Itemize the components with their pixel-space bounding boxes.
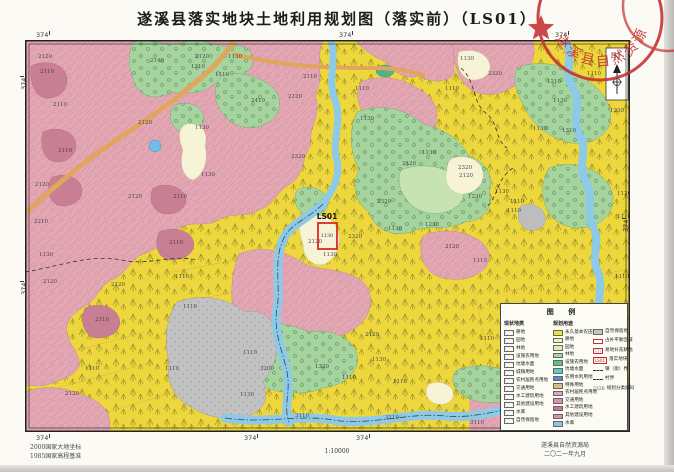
parcel-code-label: 1230 bbox=[468, 194, 482, 200]
legend-item-current: 林地 bbox=[504, 345, 551, 353]
parcel-code-label: 1110 bbox=[175, 274, 189, 280]
legend-item-label: 其他建设用地 bbox=[516, 403, 544, 408]
legend-swatch bbox=[553, 391, 563, 397]
legend-item-misc: 自然保留地 bbox=[593, 327, 628, 337]
grid-coordinate-label: 374 bbox=[20, 76, 28, 90]
legend-item-label: 设施农用地 bbox=[565, 361, 588, 366]
legend-swatch bbox=[553, 414, 563, 420]
legend-item-label: 自然保留地 bbox=[516, 419, 539, 424]
parcel-code-label: 1120 bbox=[617, 191, 630, 197]
legend-item-label: 交通用地 bbox=[565, 399, 583, 404]
legend-swatch: 2320 bbox=[593, 387, 605, 392]
parcel-code-label: 2120 bbox=[445, 244, 459, 250]
grid-coordinate-label: 374 bbox=[244, 434, 258, 442]
parcel-code-label: 1110 bbox=[355, 86, 369, 92]
legend-swatch bbox=[553, 383, 563, 389]
grid-coordinate-label: 374 bbox=[555, 31, 569, 39]
legend-item-label: 易地补充耕地 bbox=[605, 349, 633, 354]
legend-swatch bbox=[504, 362, 514, 368]
parcel-code-label: 2120 bbox=[128, 194, 142, 200]
parcel-code-label: 2120 bbox=[308, 239, 322, 245]
legend-item-label: 村界 bbox=[605, 377, 614, 382]
grid-coordinate-label: 374 bbox=[20, 281, 28, 295]
legend-item-current: 园地 bbox=[504, 337, 551, 345]
parcel-code-label: 2210 bbox=[34, 219, 48, 225]
legend-item-current: 城镇用地 bbox=[504, 369, 551, 377]
legend-swatch bbox=[504, 354, 514, 360]
legend-current-header: 现状地类 bbox=[504, 320, 551, 327]
legend-item-current: 水库 bbox=[504, 409, 551, 417]
legend-item-planned: 水库 bbox=[553, 420, 593, 428]
parcel-code-label: 2110 bbox=[58, 148, 72, 154]
legend-item-planned: 交通用地 bbox=[553, 397, 593, 405]
legend-item-planned: 水工建筑用地 bbox=[553, 405, 593, 413]
focus-parcel-code: 1130 bbox=[321, 233, 334, 239]
parcel-code-label: 2120 bbox=[138, 120, 152, 126]
legend-swatch bbox=[504, 394, 514, 400]
legend-item-planned: 坑塘水面 bbox=[553, 367, 593, 375]
legend-swatch bbox=[553, 353, 563, 359]
map-date: 二〇二一年九月 bbox=[500, 450, 630, 459]
parcel-code-label: 2110 bbox=[173, 194, 187, 200]
pond-region bbox=[149, 140, 161, 152]
legend-item-current: 设施农用地 bbox=[504, 353, 551, 361]
parcel-code-label: 2320 bbox=[348, 234, 362, 240]
parcel-code-label: 2110 bbox=[169, 240, 183, 246]
scale-note: 1:10000 bbox=[287, 447, 387, 456]
legend-swatch bbox=[593, 379, 603, 380]
parcel-code-label: 1310 bbox=[562, 128, 576, 134]
legend-item-misc: 占补平衡区域 bbox=[593, 337, 628, 347]
parcel-code-label: 2410 bbox=[251, 98, 265, 104]
legend-item-misc: 2320规划分类编码 bbox=[593, 385, 628, 395]
scan-shadow-bottom bbox=[0, 465, 674, 472]
legend-misc-column: 自然保留地占补平衡区域易地补充耕地LS01落实地块镇（街）界村界2320规划分类… bbox=[593, 327, 628, 394]
parcel-code-label: 1110 bbox=[165, 366, 179, 372]
parcel-code-label: 1110 bbox=[473, 258, 487, 264]
parcel-code-label: 1130 bbox=[195, 125, 209, 131]
legend-item-label: 设施农用地 bbox=[516, 355, 539, 360]
parcel-code-label: 3200 bbox=[260, 366, 274, 372]
agency-note: 遂溪县自然资源局 二〇二一年九月 bbox=[500, 441, 630, 459]
legend-item-planned: 设施农用地 bbox=[553, 359, 593, 367]
parcel-code-label: 2120 bbox=[288, 94, 302, 100]
legend-swatch bbox=[504, 378, 514, 384]
legend-swatch bbox=[553, 345, 563, 351]
legend-item-misc: 易地补充耕地 bbox=[593, 346, 628, 356]
legend-swatch bbox=[504, 338, 514, 344]
legend-item-misc: 镇（街）界 bbox=[593, 365, 628, 375]
parcel-code-label: 1110 bbox=[85, 366, 99, 372]
legend-item-label: 其他建设用地 bbox=[565, 414, 593, 419]
agency-name: 遂溪县自然资源局 bbox=[500, 441, 630, 450]
parcel-code-label: 1130 bbox=[39, 252, 53, 258]
parcel-code-label: 1320 bbox=[315, 364, 329, 370]
legend-swatch bbox=[593, 370, 603, 371]
legend-swatch bbox=[553, 360, 563, 366]
legend-item-planned: 园地 bbox=[553, 344, 593, 352]
legend-item-misc: 村界 bbox=[593, 375, 628, 385]
parcel-code-label: 1130 bbox=[533, 126, 547, 132]
legend-item-label: 林地 bbox=[516, 347, 525, 352]
legend-swatch bbox=[504, 410, 514, 416]
parcel-code-label: 2320 bbox=[377, 199, 391, 205]
legend-swatch bbox=[553, 398, 563, 404]
parcel-code-label: 2120 bbox=[65, 391, 79, 397]
parcel-code-label: 1110 bbox=[480, 336, 494, 342]
parcel-code-label: 2110 bbox=[40, 69, 54, 75]
legend-planned-column: 规划用途 永久基本农田耕地园地林地设施农用地坑塘水面农用水利用地特殊用地农村居民… bbox=[553, 320, 593, 428]
legend-item-misc: LS01落实地块 bbox=[593, 356, 628, 366]
parcel-code-label: 1130 bbox=[495, 189, 509, 195]
legend-item-label: 镇（街）界 bbox=[605, 368, 628, 373]
legend-title: 图 例 bbox=[501, 307, 627, 317]
legend-item-label: 耕地 bbox=[516, 331, 525, 336]
legend-item-current: 其他建设用地 bbox=[504, 401, 551, 409]
parcel-code-label: 1110 bbox=[615, 274, 629, 280]
legend-item-planned: 农用水利用地 bbox=[553, 375, 593, 383]
parcel-code-label: 1310 bbox=[191, 64, 205, 70]
parcel-code-label: 1210 bbox=[547, 79, 561, 85]
legend-item-label: 水库 bbox=[565, 422, 574, 427]
parcel-code-label: 2120 bbox=[43, 279, 57, 285]
parcel-code-label: 2120 bbox=[195, 54, 209, 60]
legend-swatch bbox=[593, 339, 603, 345]
parcel-code-label: 1130 bbox=[240, 392, 254, 398]
grid-coordinate-label: 374 bbox=[36, 434, 50, 442]
parcel-code-label: 1110 bbox=[445, 86, 459, 92]
legend-swatch bbox=[504, 386, 514, 392]
parcel-code-label: 1130 bbox=[460, 56, 474, 62]
legend-swatch bbox=[504, 402, 514, 408]
legend-swatch bbox=[504, 346, 514, 352]
parcel-code-label: 2140 bbox=[150, 58, 164, 64]
legend-swatch bbox=[553, 368, 563, 374]
legend-item-label: 坑塘水面 bbox=[516, 363, 534, 368]
legend-swatch bbox=[504, 330, 514, 336]
grid-coordinate-label: 374 bbox=[356, 434, 370, 442]
parcel-code-label: 1130 bbox=[553, 98, 567, 104]
legend-item-label: 特殊用地 bbox=[565, 384, 583, 389]
legend-swatch bbox=[553, 338, 563, 344]
legend-item-label: 城镇用地 bbox=[516, 371, 534, 376]
svg-text:N: N bbox=[614, 53, 621, 62]
parcel-code-label: 1110 bbox=[510, 199, 524, 205]
focus-parcel-label: LS01 bbox=[317, 212, 338, 221]
parcel-code-label: 3110 bbox=[470, 420, 484, 426]
legend-swatch bbox=[593, 348, 603, 354]
parcel-code-label: 1230 bbox=[610, 108, 624, 114]
legend-item-planned: 耕地 bbox=[553, 337, 593, 345]
legend-item-current: 水工建筑用地 bbox=[504, 393, 551, 401]
legend-swatch bbox=[553, 406, 563, 412]
parcel-code-label: 1110 bbox=[507, 208, 521, 214]
legend-planned-header: 规划用途 bbox=[553, 320, 593, 327]
legend-item-label: 永久基本农田 bbox=[565, 331, 593, 336]
legend-item-label: 自然保留地 bbox=[605, 330, 628, 335]
legend-item-current: 交通用地 bbox=[504, 385, 551, 393]
parcel-code-label: 2320 bbox=[488, 71, 502, 77]
legend-swatch bbox=[593, 329, 603, 335]
parcel-code-label: 2110 bbox=[53, 102, 67, 108]
legend-swatch bbox=[553, 421, 563, 427]
legend-item-label: 林地 bbox=[565, 353, 574, 358]
parcel-code-label: 2120 bbox=[38, 54, 52, 60]
map-canvas: 2120211021102110212022101130212021102120… bbox=[25, 40, 630, 432]
legend-item-current: 耕地 bbox=[504, 329, 551, 337]
parcel-code-label: 2120 bbox=[35, 182, 49, 188]
legend-item-current: 农村居民点用地 bbox=[504, 377, 551, 385]
parcel-code-label: 2120 bbox=[459, 173, 473, 179]
legend-item-label: 交通用地 bbox=[516, 387, 534, 392]
legend-swatch bbox=[553, 376, 563, 382]
legend-item-label: 耕地 bbox=[565, 338, 574, 343]
parcel-code-label: 1110 bbox=[587, 71, 601, 77]
parcel-code-label: 3110 bbox=[385, 415, 399, 421]
parcel-code-label: 1130 bbox=[201, 172, 215, 178]
scanned-map-page: 遂溪县落实地块土地利用规划图（落实前）（LS01） bbox=[0, 0, 674, 472]
legend-item-label: 园地 bbox=[565, 346, 574, 351]
legend-item-planned: 其他建设用地 bbox=[553, 413, 593, 421]
parcel-code-label: 1130 bbox=[323, 252, 337, 258]
legend-swatch bbox=[504, 370, 514, 376]
datum-line1: 2000国家大地坐标 bbox=[30, 443, 81, 452]
legend-item-planned: 永久基本农田 bbox=[553, 329, 593, 337]
datum-note: 2000国家大地坐标 1985国家高程基准 bbox=[30, 443, 81, 461]
legend-item-label: 规划分类编码 bbox=[607, 387, 635, 392]
parcel-code-label: 2320 bbox=[291, 154, 305, 160]
parcel-code-label: 1130 bbox=[422, 150, 436, 156]
parcel-code-label: 1130 bbox=[372, 357, 386, 363]
legend-item-current: 坑塘水面 bbox=[504, 361, 551, 369]
parcel-code-label: 1110 bbox=[342, 375, 356, 381]
parcel-code-label: 2120 bbox=[365, 332, 379, 338]
legend-item-label: 水工建筑用地 bbox=[516, 395, 544, 400]
parcel-code-label: 2110 bbox=[95, 317, 109, 323]
legend-item-label: 坑塘水面 bbox=[565, 368, 583, 373]
north-arrow: N bbox=[606, 48, 628, 100]
legend-current-column: 现状地类 耕地园地林地设施农用地坑塘水面城镇用地农村居民点用地交通用地水工建筑用… bbox=[504, 320, 551, 425]
parcel-code-label: 1110 bbox=[243, 350, 257, 356]
legend-swatch bbox=[553, 330, 563, 336]
scan-shadow-right bbox=[664, 0, 674, 472]
legend-item-label: 水库 bbox=[516, 411, 525, 416]
grid-coordinate-label: 374 bbox=[622, 218, 630, 232]
legend-item-label: 农用水利用地 bbox=[565, 376, 593, 381]
legend-swatch bbox=[504, 418, 514, 424]
legend-item-planned: 林地 bbox=[553, 352, 593, 360]
legend-swatch: LS01 bbox=[593, 357, 607, 364]
parcel-code-label: 1110 bbox=[393, 379, 407, 385]
legend-item-label: 水工建筑用地 bbox=[565, 406, 593, 411]
grid-coordinate-label: 374 bbox=[36, 31, 50, 39]
legend: 图 例 现状地类 耕地园地林地设施农用地坑塘水面城镇用地农村居民点用地交通用地水… bbox=[500, 303, 628, 431]
legend-item-label: 落实地块 bbox=[609, 358, 627, 363]
legend-item-current: 自然保留地 bbox=[504, 417, 551, 425]
parcel-code-label: 2120 bbox=[111, 282, 125, 288]
grid-coordinate-label: 374 bbox=[339, 31, 353, 39]
parcel-code-label: 1130 bbox=[360, 116, 374, 122]
parcel-code-label: 2110 bbox=[303, 74, 317, 80]
parcel-code-label: 2320 bbox=[458, 165, 472, 171]
parcel-code-label: 1110 bbox=[183, 304, 197, 310]
parcel-code-label: 1230 bbox=[425, 222, 439, 228]
parcel-code-label: 1130 bbox=[228, 54, 242, 60]
page-title: 遂溪县落实地块土地利用规划图（落实前）（LS01） bbox=[0, 8, 674, 29]
legend-item-label: 农村居民点用地 bbox=[516, 379, 548, 384]
parcel-code-label: 1130 bbox=[388, 226, 402, 232]
legend-item-planned: 农村居民点用地 bbox=[553, 390, 593, 398]
parcel-code-label: 3110 bbox=[295, 413, 309, 419]
parcel-code-label: 1110 bbox=[215, 72, 229, 78]
legend-item-label: 园地 bbox=[516, 339, 525, 344]
datum-line2: 1985国家高程基准 bbox=[30, 452, 81, 461]
parcel-code-label: 2120 bbox=[402, 161, 416, 167]
legend-item-label: 占补平衡区域 bbox=[605, 339, 633, 344]
legend-item-planned: 特殊用地 bbox=[553, 382, 593, 390]
